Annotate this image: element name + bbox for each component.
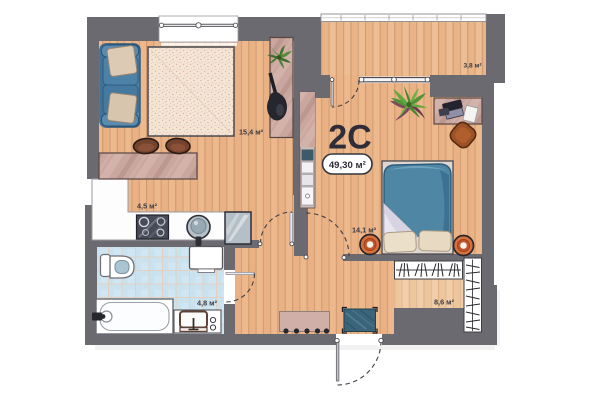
svg-text:3,8 м²: 3,8 м² [463,63,482,70]
svg-text:8,6 м²: 8,6 м² [434,298,455,307]
svg-text:2C: 2C [328,119,371,157]
svg-text:15,4 м²: 15,4 м² [239,128,264,137]
svg-text:49,30 м²: 49,30 м² [329,160,366,171]
svg-text:4,8 м²: 4,8 м² [197,299,218,308]
svg-text:14,1 м²: 14,1 м² [352,226,377,235]
svg-text:4,5 м²: 4,5 м² [137,202,158,211]
